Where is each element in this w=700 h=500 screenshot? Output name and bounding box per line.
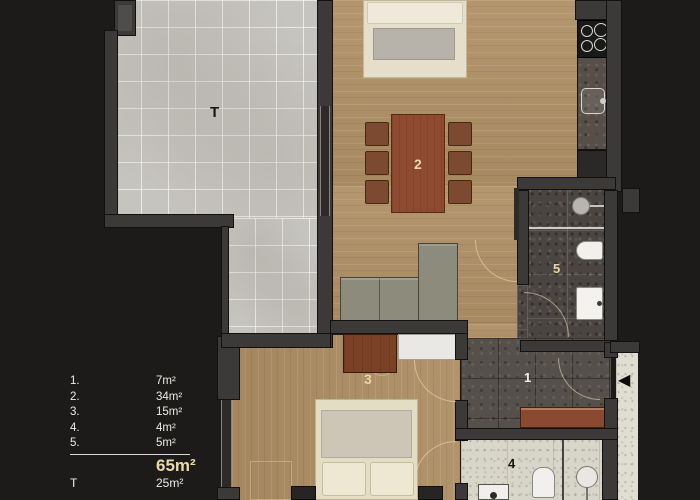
dining-chair bbox=[365, 122, 389, 146]
shower-head-icon bbox=[572, 197, 590, 215]
legend-row: 1. 7m² bbox=[70, 374, 198, 390]
wardrobe-white bbox=[398, 334, 456, 360]
toilet-wc bbox=[532, 467, 555, 498]
legend-row: 2. 34m² bbox=[70, 390, 198, 406]
cabinet-tall bbox=[418, 243, 458, 322]
legend-room-number: 4. bbox=[70, 421, 156, 437]
legend-row: 3. 15m² bbox=[70, 405, 198, 421]
basin-faucet-icon bbox=[597, 301, 602, 306]
wall-terrace-bottom bbox=[104, 214, 234, 228]
legend-total-area: 65m² bbox=[70, 456, 198, 475]
wall-corridor-top bbox=[610, 341, 640, 353]
living-terrace-window bbox=[320, 106, 330, 216]
room-label-bathroom: 5 bbox=[553, 261, 561, 276]
legend-terrace-area: 25m² bbox=[156, 475, 198, 491]
room-label-terrace: T bbox=[210, 104, 219, 121]
wall-bedroom-right-c bbox=[455, 483, 468, 500]
rug-outline bbox=[250, 461, 292, 500]
shower-divider-line bbox=[529, 227, 607, 229]
wall-bedroom-top-left bbox=[221, 333, 331, 348]
legend-row: 5. 5m² bbox=[70, 436, 198, 452]
dining-chair bbox=[448, 122, 472, 146]
terrace-floor-lower bbox=[228, 218, 318, 340]
burner-icon bbox=[581, 25, 593, 37]
legend-terrace-row: T 25m² bbox=[70, 475, 198, 491]
legend-room-number: 3. bbox=[70, 405, 156, 421]
legend-room-area: 15m² bbox=[156, 405, 198, 421]
wall-terrace-inner bbox=[221, 226, 229, 336]
room-label-bedroom: 3 bbox=[364, 371, 372, 387]
legend-room-area: 4m² bbox=[156, 421, 198, 437]
bed-blanket bbox=[321, 410, 412, 458]
wall-right-jut bbox=[622, 188, 640, 213]
wall-wc-right bbox=[602, 437, 618, 500]
wall-bathroom-right bbox=[604, 190, 618, 342]
dining-chair bbox=[365, 151, 389, 175]
legend-row: 4. 4m² bbox=[70, 421, 198, 437]
hall-bench bbox=[520, 407, 608, 428]
legend-room-area: 5m² bbox=[156, 436, 198, 452]
toilet-bathroom bbox=[576, 241, 603, 260]
sofa-bed-pillows bbox=[367, 2, 463, 24]
wall-right-main bbox=[606, 0, 622, 192]
area-legend: 1. 7m² 2. 34m² 3. 15m² 4. 4m² 5. 5m² 65m… bbox=[70, 374, 198, 491]
wall-bedroom-left-lower bbox=[217, 487, 240, 500]
washing-machine-door-icon bbox=[490, 492, 497, 499]
dresser bbox=[343, 334, 397, 373]
legend-room-number: 1. bbox=[70, 374, 156, 390]
wall-pillar-core bbox=[118, 5, 132, 31]
wall-living-bedroom bbox=[330, 320, 468, 334]
legend-room-number: 2. bbox=[70, 390, 156, 406]
wc-partition bbox=[562, 440, 564, 500]
wall-hall-wc bbox=[455, 428, 618, 440]
nightstand bbox=[291, 486, 316, 500]
entry-arrow-icon: ◀ bbox=[618, 371, 630, 391]
legend-divider bbox=[70, 454, 190, 455]
bedroom-window bbox=[221, 400, 232, 487]
legend-terrace-label: T bbox=[70, 475, 156, 491]
pedestal-sink-bowl bbox=[576, 466, 598, 488]
door-leaf-corridor bbox=[514, 188, 519, 240]
wall-bathroom-top bbox=[517, 177, 616, 190]
bed-pillow bbox=[370, 462, 414, 496]
nightstand bbox=[418, 486, 443, 500]
bed-pillow bbox=[322, 462, 366, 496]
room-label-living: 2 bbox=[414, 156, 422, 172]
legend-room-area: 34m² bbox=[156, 390, 198, 406]
wall-kitchen-top bbox=[575, 0, 608, 20]
dining-chair bbox=[448, 180, 472, 204]
sofa-bed-blanket bbox=[373, 28, 455, 60]
room-label-hall: 1 bbox=[524, 370, 532, 385]
legend-room-number: 5. bbox=[70, 436, 156, 452]
wall-bedroom-right-a bbox=[455, 333, 468, 360]
shower-arm bbox=[589, 205, 604, 207]
floor-plan-canvas: 2 bbox=[0, 0, 700, 500]
burner-icon bbox=[581, 40, 593, 52]
dining-chair bbox=[365, 180, 389, 204]
room-label-wc: 4 bbox=[508, 456, 516, 471]
dining-chair bbox=[448, 151, 472, 175]
kitchen-cabinet-lower bbox=[577, 150, 608, 180]
dining-table: 2 bbox=[391, 114, 445, 213]
wall-terrace-left bbox=[104, 30, 118, 226]
legend-room-area: 7m² bbox=[156, 374, 198, 390]
